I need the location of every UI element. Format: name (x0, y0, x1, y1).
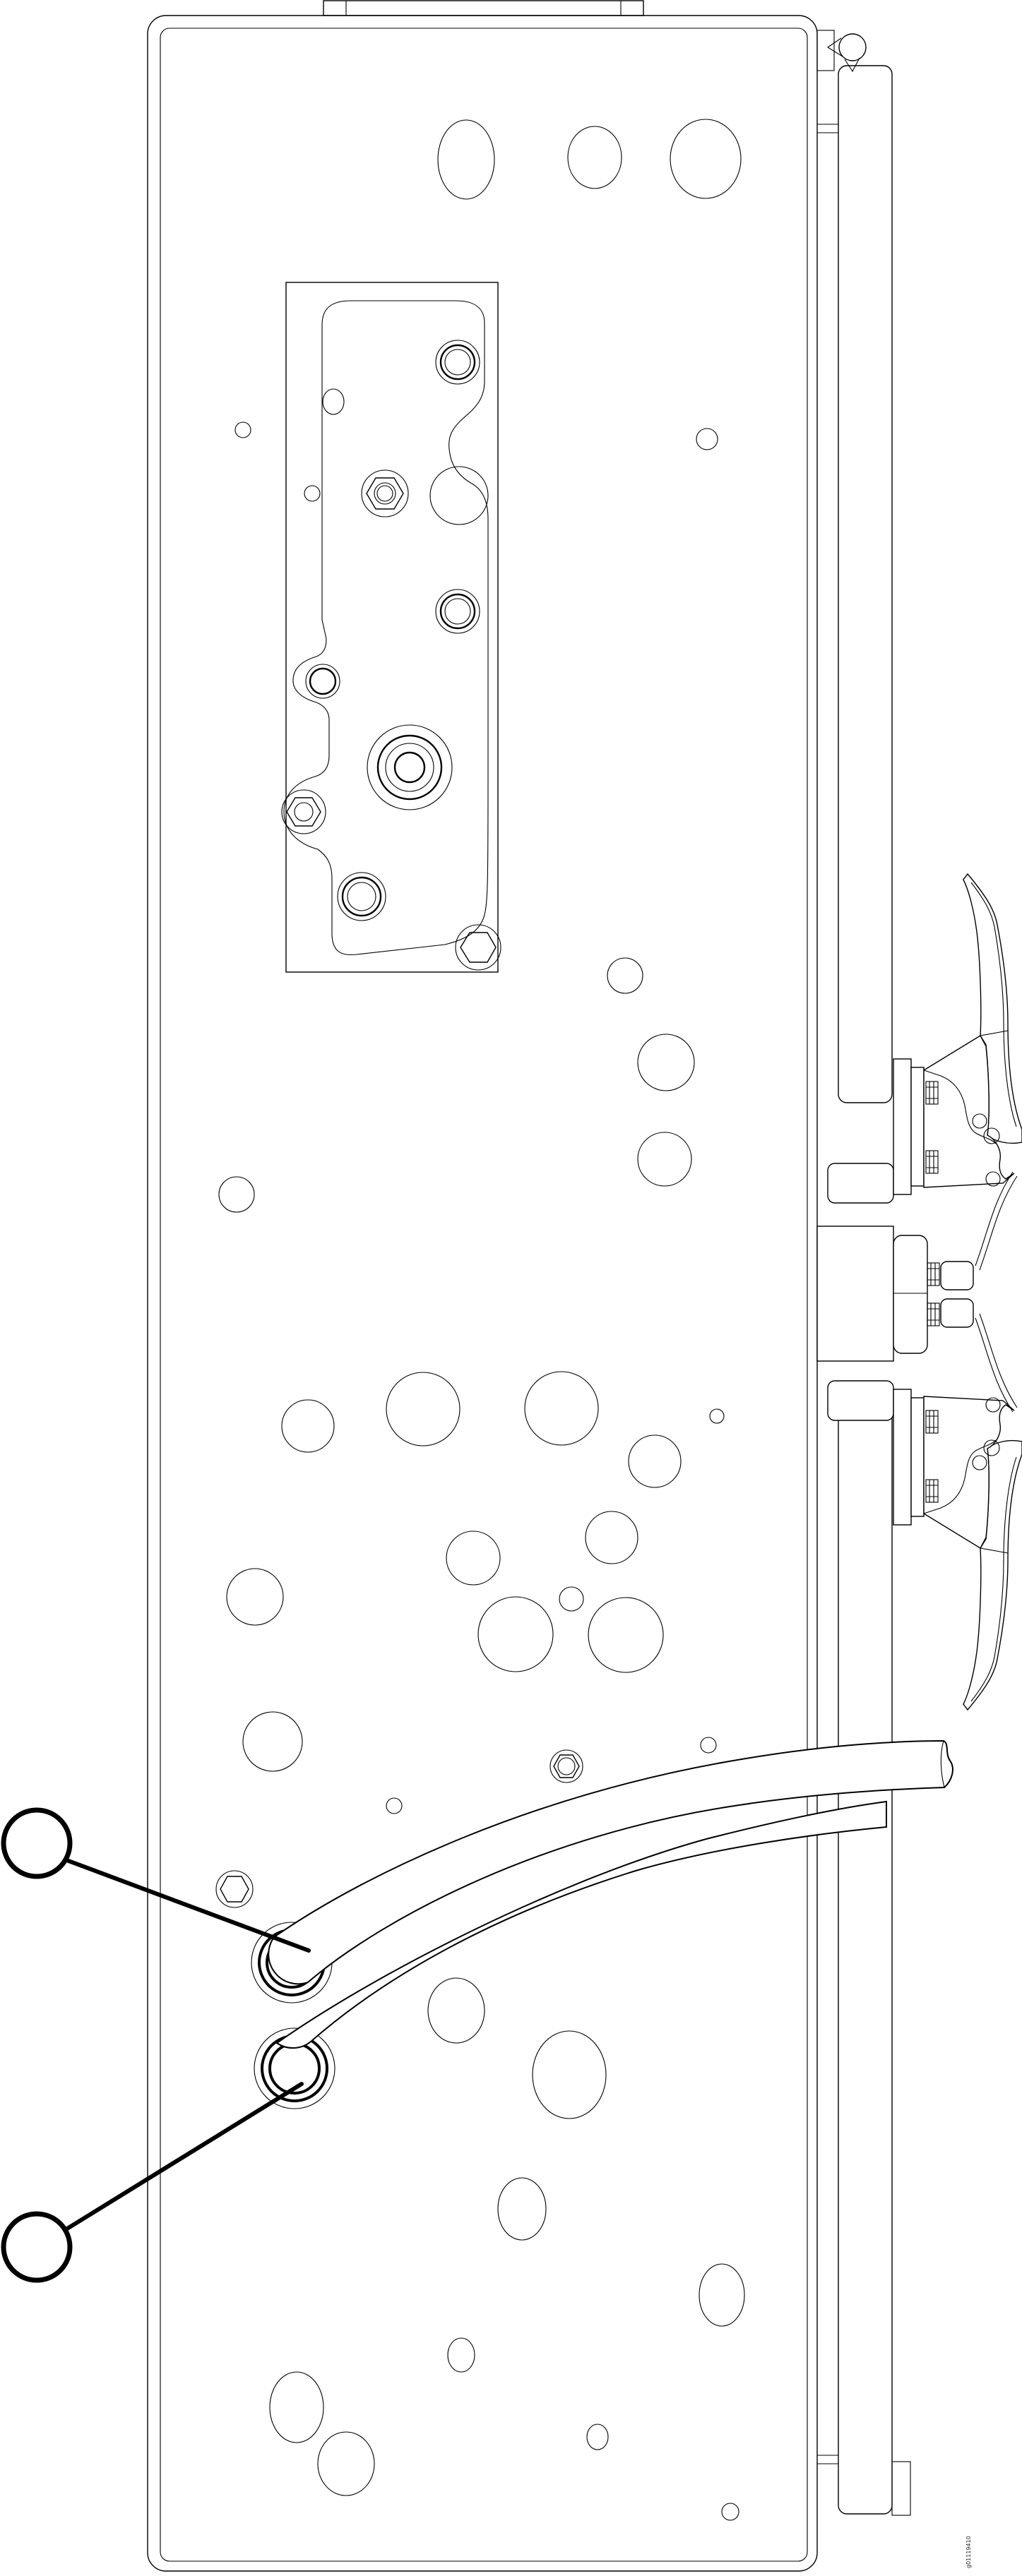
plate-hole (586, 1511, 638, 1564)
plate-hole (638, 1034, 694, 1091)
plate-hole (386, 1372, 460, 1446)
port-fitting (436, 589, 480, 633)
manifold-panel (282, 282, 501, 972)
technical-illustration-page: g01119410 (0, 0, 1022, 2576)
plate-hole (498, 2178, 546, 2240)
hex-plug (216, 1871, 253, 1907)
plate-hole (638, 1132, 691, 1186)
line-drawing: g01119410 (0, 0, 1022, 2576)
callout-2 (4, 2084, 302, 2280)
plate-hole (428, 1978, 485, 2043)
plate-hole (559, 1587, 583, 1611)
port-fitting (436, 340, 480, 384)
plate-hole (607, 958, 643, 993)
port-fitting (338, 873, 386, 921)
fan-bracket-upper (828, 874, 1022, 1270)
hub-block (817, 1226, 893, 1361)
gasket-edge-hole (304, 486, 320, 501)
plate-hole (533, 2031, 606, 2119)
hub-bolt (927, 1303, 939, 1326)
plate-hole (478, 1597, 553, 1672)
center-hub-mount (817, 1226, 973, 1361)
hex-bolt (456, 925, 501, 970)
callout-1-leader (69, 1861, 309, 1951)
hex-plug (550, 1750, 583, 1783)
callout-2-leader (67, 2084, 302, 2229)
plate-hole (235, 422, 251, 438)
plate-holes (219, 119, 744, 2520)
plate-hole (588, 1598, 663, 1672)
callout-1 (4, 1810, 309, 1951)
plate-hole (438, 120, 494, 199)
rail-lower-segment (838, 1387, 892, 2514)
callout-1-balloon (4, 1810, 70, 1876)
plate-outline-outer (148, 16, 817, 2571)
plate-top-tab (323, 1, 643, 16)
plate-hole (710, 1409, 724, 1423)
plate-hole (696, 429, 718, 450)
rail-upper-segment (838, 66, 892, 1103)
manifold-panel-outline (286, 282, 498, 972)
hub-face (893, 1235, 927, 1353)
hex-bolt (282, 790, 326, 834)
plate-hole (568, 126, 622, 188)
hex-bolt (362, 470, 408, 517)
plate-outline-inner (160, 28, 807, 2561)
plate-hole (446, 1531, 500, 1585)
plate-hole (270, 2372, 323, 2443)
hub-bolt (927, 1263, 939, 1286)
plate-hole (323, 389, 344, 414)
plate-hole (670, 119, 741, 198)
callout-2-balloon (4, 2214, 70, 2280)
plate-hole (243, 1712, 302, 1771)
plate-hole (219, 1177, 254, 1212)
port-fitting (306, 664, 340, 698)
plate-hole (629, 1435, 681, 1487)
plate-hole (448, 2338, 475, 2372)
plate-hole (227, 1569, 283, 1625)
bracket-tab (817, 30, 834, 71)
plate-hole (282, 1400, 334, 1452)
fan-bracket-lower (828, 1314, 1022, 1710)
plate-hole (386, 1798, 402, 1814)
rail-foot (892, 2462, 910, 2515)
plate-hole (525, 1372, 598, 1445)
panel-open-hole (430, 467, 488, 525)
plate-hole (701, 1737, 716, 1753)
plate-hole (587, 2424, 608, 2450)
main-port-fitting (367, 725, 452, 810)
washer (839, 34, 866, 61)
blade-clamp (941, 1299, 973, 1327)
hose-upper (268, 1741, 953, 1984)
plate-hole (318, 2432, 374, 2496)
mounting-plate (148, 1, 838, 2571)
plate-hole (722, 2503, 739, 2520)
plate-hole (699, 2264, 744, 2326)
figure-id: g01119410 (965, 2536, 972, 2568)
blade-clamp (941, 1262, 973, 1290)
